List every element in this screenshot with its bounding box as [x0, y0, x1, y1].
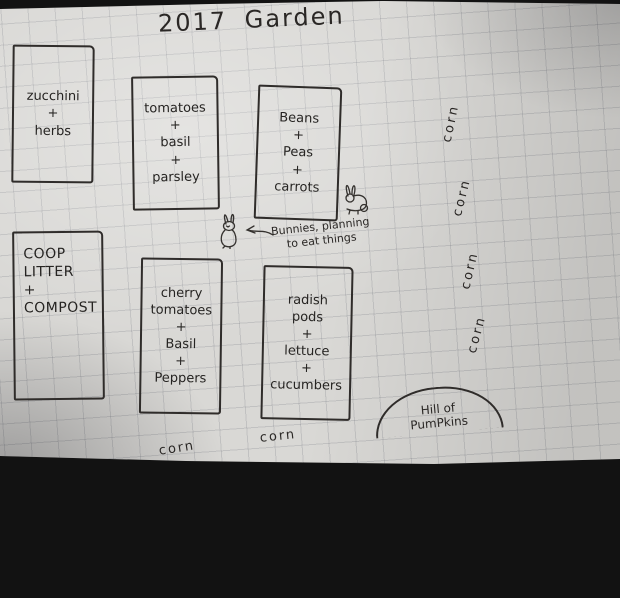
bed-label: cherry tomatoes + Basil + Peppers: [150, 284, 213, 388]
photo-background: 2017 Garden zucchini + herbs tomatoes + …: [0, 0, 620, 465]
bed-tomatoes-basil-parsley: tomatoes + basil + parsley: [131, 75, 220, 210]
bed-label: radish pods + lettuce + cucumbers: [270, 291, 344, 395]
bunny-icon: [217, 209, 243, 249]
graph-paper: 2017 Garden zucchini + herbs tomatoes + …: [0, 0, 620, 465]
bed-zucchini-herbs: zucchini + herbs: [11, 45, 94, 184]
bed-label: Beans + Peas + carrots: [274, 109, 322, 196]
bunny-icon: [338, 179, 370, 217]
bed-beans-peas-carrots: Beans + Peas + carrots: [254, 85, 343, 222]
bed-label: COOP LITTER + COMPOST: [23, 246, 97, 318]
bed-coop-litter-compost: COOP LITTER + COMPOST: [12, 231, 105, 401]
pumpkin-hill-label: Hill of PumPkins: [409, 401, 469, 436]
bed-label: zucchini + herbs: [26, 88, 80, 140]
bed-radish-pods-lettuce-cucumbers: radish pods + lettuce + cucumbers: [260, 265, 353, 421]
bed-label: tomatoes + basil + parsley: [144, 100, 207, 187]
bed-cherry-tomatoes-basil-peppers: cherry tomatoes + Basil + Peppers: [139, 257, 223, 414]
